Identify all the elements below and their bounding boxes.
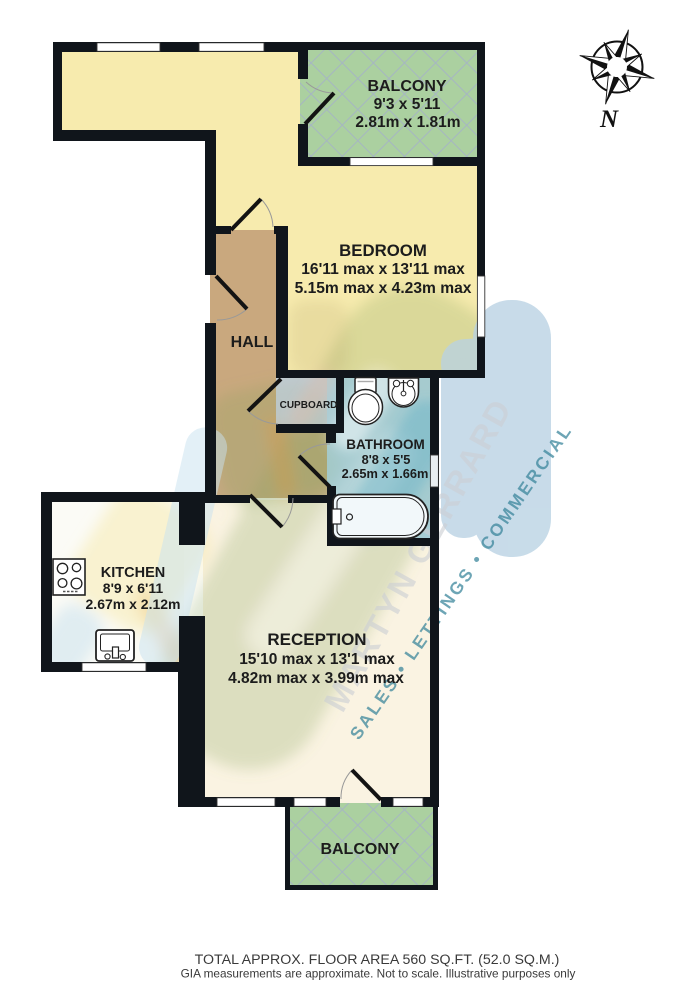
svg-text:2.81m x 1.81m: 2.81m x 1.81m <box>355 114 460 131</box>
svg-text:GIA measurements are approxima: GIA measurements are approximate. Not to… <box>181 967 576 981</box>
svg-text:9'3 x 5'11: 9'3 x 5'11 <box>374 96 441 113</box>
svg-text:4.82m max x 3.99m max: 4.82m max x 3.99m max <box>228 670 404 687</box>
svg-text:2.67m x 2.12m: 2.67m x 2.12m <box>86 596 181 612</box>
svg-text:KITCHEN: KITCHEN <box>101 565 165 581</box>
svg-text:2.65m x 1.66m: 2.65m x 1.66m <box>342 466 429 481</box>
svg-text:N: N <box>599 106 619 133</box>
svg-text:8'8 x 5'5: 8'8 x 5'5 <box>362 452 411 467</box>
svg-text:16'11 max x 13'11 max: 16'11 max x 13'11 max <box>301 261 465 278</box>
svg-text:BALCONY: BALCONY <box>320 841 399 858</box>
svg-text:5.15m max x 4.23m max: 5.15m max x 4.23m max <box>295 280 472 297</box>
svg-text:BEDROOM: BEDROOM <box>339 241 427 260</box>
svg-text:15'10 max x 13'1 max: 15'10 max x 13'1 max <box>239 651 395 668</box>
svg-text:HALL: HALL <box>231 334 274 351</box>
svg-text:CUPBOARD: CUPBOARD <box>280 400 338 411</box>
svg-text:RECEPTION: RECEPTION <box>267 630 366 649</box>
svg-text:BALCONY: BALCONY <box>367 78 446 95</box>
svg-text:8'9 x 6'11: 8'9 x 6'11 <box>103 580 164 596</box>
svg-text:BATHROOM: BATHROOM <box>346 437 425 452</box>
